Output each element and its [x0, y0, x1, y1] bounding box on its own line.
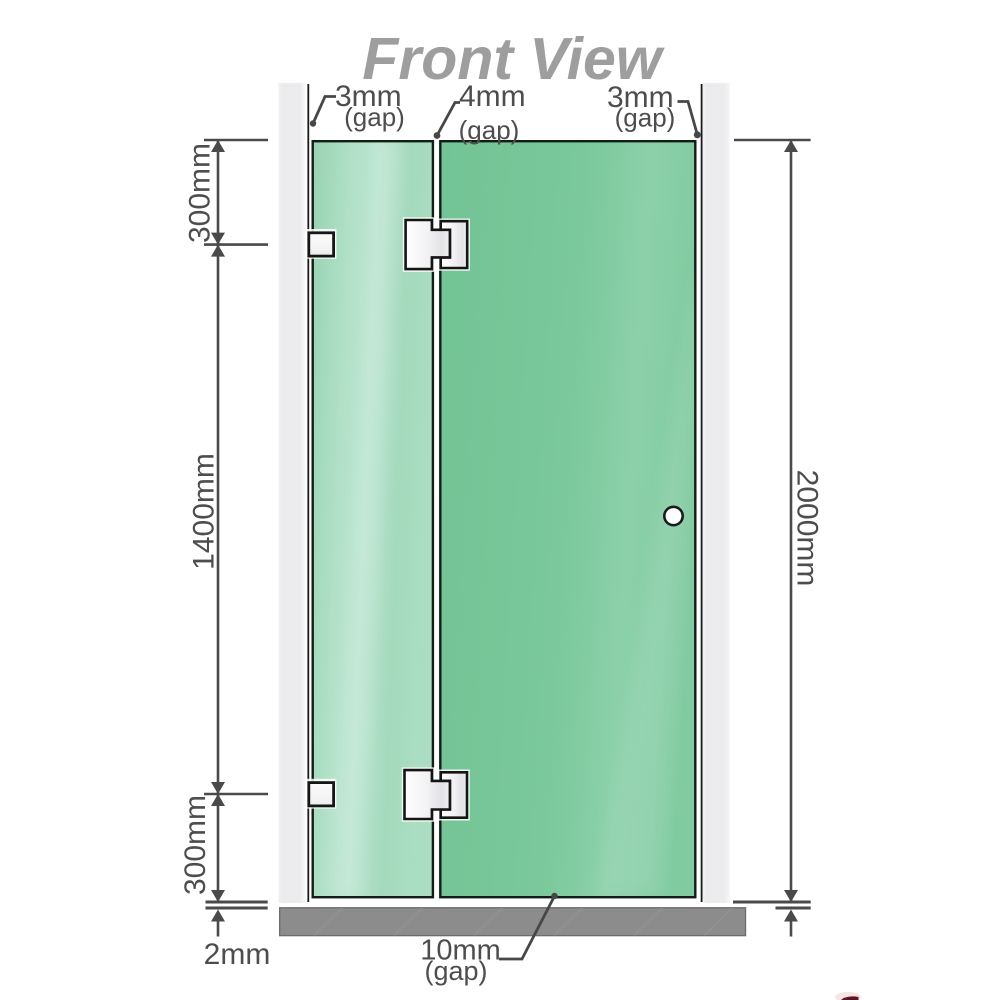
svg-text:1400mm: 1400mm — [188, 453, 221, 570]
svg-text:2mm: 2mm — [204, 938, 271, 971]
svg-text:4mm: 4mm — [459, 80, 526, 113]
svg-text:300mm: 300mm — [179, 795, 212, 895]
svg-text:(gap): (gap) — [424, 956, 487, 986]
svg-text:2000mm: 2000mm — [791, 470, 824, 587]
svg-text:300mm: 300mm — [184, 143, 217, 243]
svg-text:(gap): (gap) — [615, 103, 676, 133]
svg-text:(gap): (gap) — [459, 115, 520, 145]
svg-text:(gap): (gap) — [344, 102, 405, 132]
